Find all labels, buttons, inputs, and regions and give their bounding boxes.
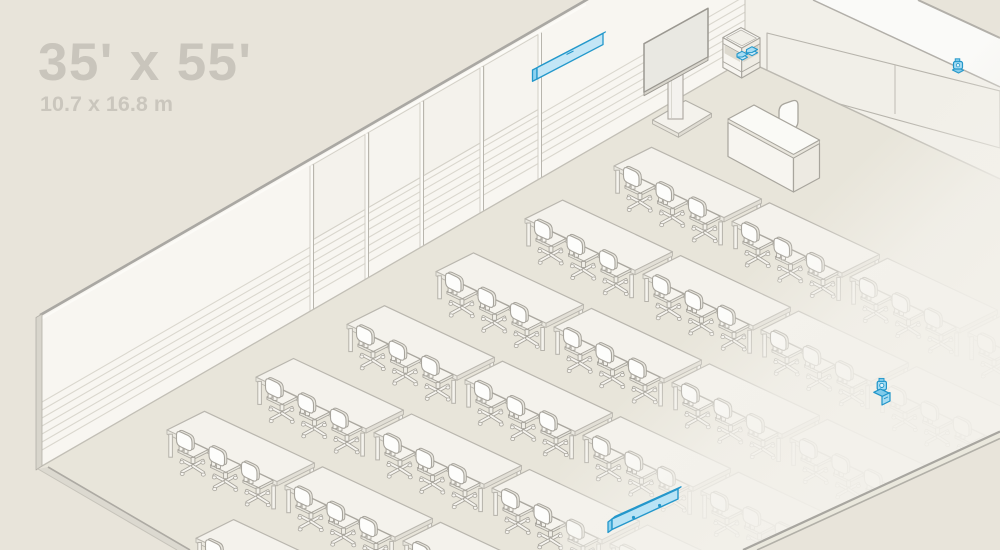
svg-text:35' x 55': 35' x 55' — [38, 33, 251, 92]
svg-text:10.7 x 16.8 m: 10.7 x 16.8 m — [40, 92, 173, 116]
